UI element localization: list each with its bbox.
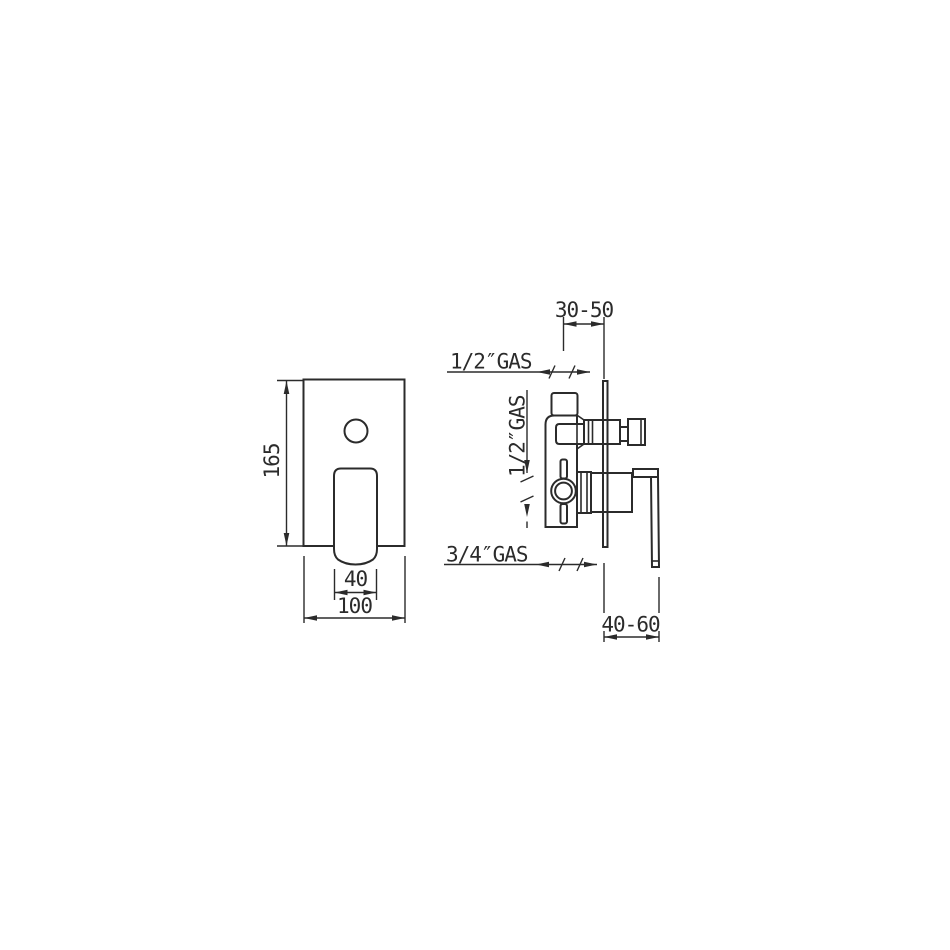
front-view: 165 40 100 xyxy=(260,380,405,624)
bottom-outlet-assembly xyxy=(577,469,659,567)
lever-handle-front xyxy=(334,469,377,565)
cross-knob-top-bar xyxy=(561,460,568,479)
side-outlet-knob xyxy=(628,419,645,445)
bottom-outlet-label: 3/4″GAS xyxy=(446,543,528,567)
dim-height-165: 165 xyxy=(260,381,303,547)
wall-depth-label: 30-50 xyxy=(555,298,614,322)
plate-width-label: 100 xyxy=(337,594,372,618)
label-side-outlet: 1/2″GAS xyxy=(506,390,534,528)
side-view: 30-50 1/2″GAS 1/2″GAS 3/4″GAS xyxy=(444,298,660,642)
wall-plate-edge xyxy=(603,381,608,547)
lever-bar xyxy=(651,477,659,567)
dim-wall-depth-30-50: 30-50 xyxy=(555,298,614,379)
cross-knob-bottom-bar xyxy=(561,504,568,524)
mixer-technical-drawing: 165 40 100 xyxy=(0,0,950,950)
side-outlet-inner xyxy=(556,424,584,444)
label-top-inlet: 1/2″GAS xyxy=(447,350,590,379)
side-outlet-shaft xyxy=(620,427,628,441)
bottom-outlet-flange xyxy=(577,472,591,513)
lever-top xyxy=(633,469,658,477)
dim-lever-depth-40-60: 40-60 xyxy=(601,563,660,642)
lever-depth-label: 40-60 xyxy=(601,613,660,637)
technical-drawing-page: 165 40 100 xyxy=(0,0,950,950)
handle-width-label: 40 xyxy=(344,567,368,591)
diverter-knob-front xyxy=(345,420,368,443)
top-inlet-label: 1/2″GAS xyxy=(450,350,532,374)
handle-hub xyxy=(591,473,632,512)
height-label: 165 xyxy=(260,444,284,479)
label-bottom-outlet: 3/4″GAS xyxy=(444,543,597,572)
top-inlet-stub xyxy=(552,393,578,416)
